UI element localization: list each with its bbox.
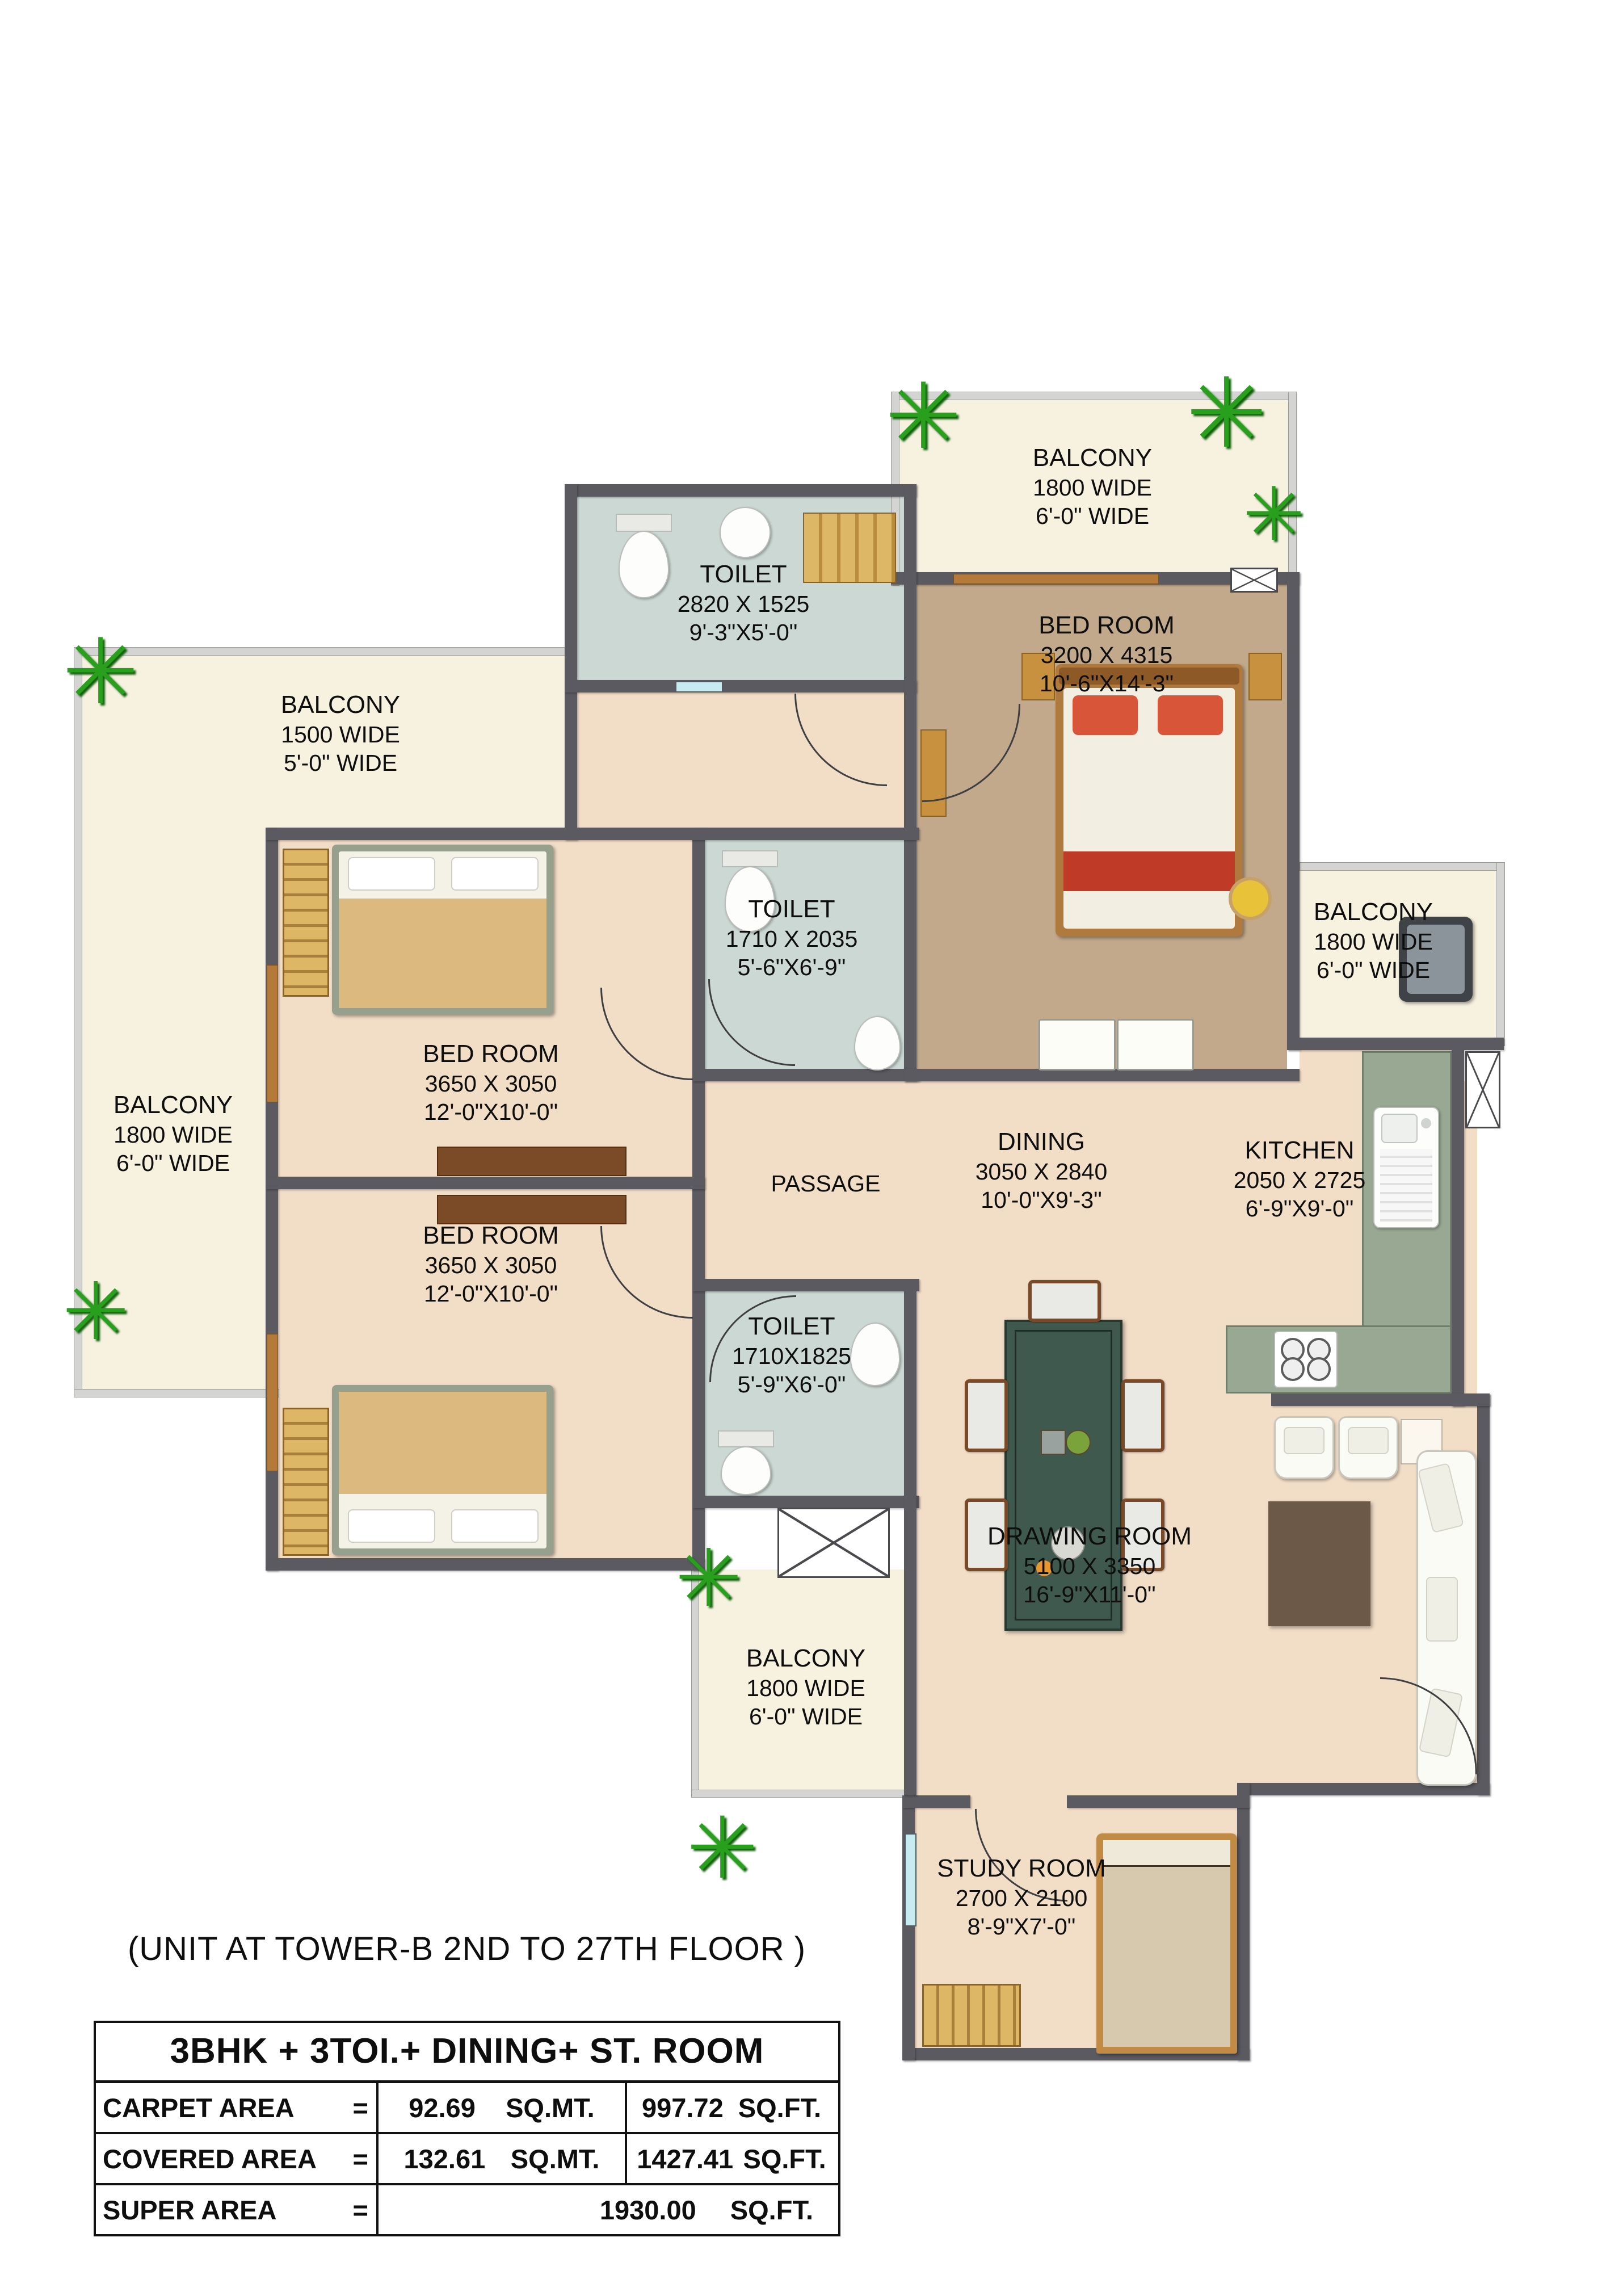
rail-balcony-left-bottom [74,1389,279,1397]
sqft-merged-cell: 1930.00 SQ.FT. [379,2185,836,2234]
bed-pillow [348,857,435,891]
wall-master-left [904,484,916,1081]
area-summary-table: 3BHK + 3TOI.+ DINING+ ST. ROOM CARPET AR… [94,2021,840,2236]
wall-toilet-lower-top [692,1279,919,1291]
room-dim-mm: 2820 X 1525 [678,590,810,618]
plant-icon [1186,358,1267,470]
armchair-cushion [1284,1427,1325,1454]
sliding-door-bedroom-mid-balcony [267,965,278,1102]
armchair-cushion [1348,1427,1389,1454]
wall-study-right [1237,1783,1250,2060]
wall-drawing-right [1477,1393,1490,1795]
bedroom-lower-bed [332,1385,553,1555]
wall-toilet-top-left [565,484,577,840]
floorplan-page: BALCONY 1800 WIDE 6'-0" WIDE TOILET 2820… [0,0,1623,2296]
wall-toilet-lower-bottom [692,1496,919,1508]
room-dim-mm: 3650 X 3050 [423,1069,559,1098]
rail-balcony-topleft-top [74,647,572,656]
wall-study-top-a [902,1795,970,1808]
study-bed-blanket [1103,1840,1230,2047]
room-dim-ft: 12'-0"X10'-0" [423,1279,559,1308]
room-name: BALCONY [1033,443,1152,473]
room-label-toilet-top: TOILET 2820 X 1525 9'-3"X5'-0" [678,559,810,647]
dining-decor [1041,1430,1066,1455]
room-dim-ft: 5'-0" WIDE [281,749,400,777]
room-label-bedroom-lower: BED ROOM 3650 X 3050 12'-0"X10'-0" [423,1220,559,1308]
rail-balcony-right-outer [1496,862,1505,1046]
wall-bedroom-mid-top [266,828,919,840]
room-dim-mm: 5100 X 3350 [987,1552,1192,1580]
sqft-unit: SQ.FT. [743,2143,826,2175]
study-bed-pillow [1103,1840,1230,1867]
room-dim-ft: 5'-6"X6'-9" [726,953,858,981]
sink-drainboard [1380,1149,1432,1222]
plant-icon [62,619,138,725]
room-label-drawing-room: DRAWING ROOM 5100 X 3350 16'-9"X11'-0" [987,1521,1192,1609]
table-row-super-area: SUPER AREA = 1930.00 SQ.FT. [96,2185,838,2234]
kitchen-sink [1373,1107,1439,1228]
master-pouf [1117,1019,1194,1071]
window-study-left [905,1833,916,1926]
room-name: BED ROOM [1038,610,1175,641]
wall-toilet-top-bottom [565,680,916,692]
wc-tank [722,850,778,867]
sliding-door-master-balcony [953,574,1159,584]
room-dim-mm: 3650 X 3050 [423,1251,559,1279]
wall-bedroom-lower-bottom [266,1558,705,1571]
toilet-vanity [803,513,896,583]
wall-master-bottom [904,1069,1300,1081]
room-dim-ft: 6'-9"X9'-0" [1234,1194,1366,1223]
bedside-table [1248,653,1282,700]
window-marker-box [1230,568,1278,593]
row-label: COVERED AREA [103,2143,317,2175]
wc-tank [616,514,672,532]
bed-pillow [451,1509,539,1543]
row-label-cell: CARPET AREA = [96,2083,379,2132]
room-dim-mm: 1500 WIDE [281,720,400,749]
master-bed-pillow [1158,695,1223,735]
room-label-dining: DINING 3050 X 2840 10'-0"X9'-3" [976,1127,1108,1214]
room-name: BED ROOM [423,1039,559,1069]
sqft-value: 1930.00 [600,2194,696,2226]
wc-tank [718,1430,774,1447]
tv-console [437,1147,627,1176]
equals-sign: = [353,2143,368,2175]
room-label-passage: PASSAGE [771,1169,881,1198]
sqmt-value: 92.69 [409,2092,476,2123]
row-label-cell: SUPER AREA = [96,2185,379,2234]
wall-balcony-right-bottom [1287,1038,1504,1050]
room-dim-mm: 1710X1825 [732,1342,851,1370]
wardrobe [283,1408,329,1556]
plan-title: (UNIT AT TOWER-B 2ND TO 27TH FLOOR ) [96,1930,837,1968]
rail-balcony-right-top [1300,862,1505,871]
room-label-balcony-top: BALCONY 1800 WIDE 6'-0" WIDE [1033,443,1152,530]
room-dim-ft: 10'-0"X9'-3" [976,1186,1108,1214]
duct-shaft [1465,1051,1500,1128]
master-bed-pillow [1073,695,1138,735]
sink-bowl [1381,1114,1418,1143]
bed-blanket [339,1392,546,1494]
room-dim-mm: 1800 WIDE [113,1120,233,1149]
washbasin-icon [720,507,771,558]
bed-pillow [348,1509,435,1543]
room-dim-ft: 10'-6"X14'-3" [1038,669,1175,698]
sqft-unit: SQ.FT. [730,2194,813,2226]
bedroom-mid-bed [332,845,553,1015]
master-bed-runner [1063,851,1235,891]
room-name: DINING [976,1127,1108,1157]
plant-icon [62,1266,129,1358]
plant-icon [885,363,961,469]
room-name: STUDY ROOM [937,1853,1105,1884]
sqmt-unit: SQ.MT. [506,2092,595,2123]
room-name: BALCONY [746,1643,865,1674]
room-label-study-room: STUDY ROOM 2700 X 2100 8'-9"X7'-0" [937,1853,1105,1941]
master-pouf [1038,1019,1116,1071]
room-dim-ft: 6'-0" WIDE [1033,502,1152,530]
wall-master-right [1287,572,1300,1050]
room-dim-mm: 3200 X 4315 [1038,641,1175,669]
room-name: TOILET [732,1311,851,1342]
window-toilet-top [675,681,723,692]
drawing-room-rug [1268,1501,1370,1626]
dining-chair [1121,1379,1164,1452]
room-name: BED ROOM [423,1220,559,1251]
burner [1307,1357,1331,1381]
plant-icon [1243,471,1305,557]
room-dim-ft: 6'-0" WIDE [113,1149,233,1177]
sqft-value: 997.72 [642,2092,724,2123]
room-dim-mm: 3050 X 2840 [976,1157,1108,1186]
master-bed [1056,664,1243,937]
stove [1274,1331,1338,1388]
room-dim-mm: 1800 WIDE [1314,927,1433,956]
sqft-value: 1427.41 [637,2143,733,2175]
sqmt-cell: 132.61 SQ.MT. [379,2134,627,2183]
sliding-door-bedroom-lower-balcony [267,1334,278,1471]
sqft-unit: SQ.FT. [738,2092,821,2123]
room-dim-mm: 2700 X 2100 [937,1884,1105,1912]
sqft-cell: 1427.41 SQ.FT. [627,2134,836,2183]
sqmt-value: 132.61 [404,2143,486,2175]
room-dim-mm: 1800 WIDE [1033,473,1152,502]
room-dim-ft: 8'-9"X7'-0" [937,1912,1105,1941]
decor-plate [1229,877,1272,920]
room-dim-ft: 6'-0" WIDE [1314,956,1433,984]
table-row-carpet-area: CARPET AREA = 92.69 SQ.MT. 997.72 SQ.FT. [96,2083,838,2134]
sink-faucet [1421,1118,1431,1128]
armchair [1338,1416,1398,1479]
wall-kitchen-right [1452,1050,1464,1406]
study-wardrobe [922,1984,1021,2047]
room-name: BALCONY [1314,897,1433,927]
equals-sign: = [353,2092,368,2123]
room-label-balcony-left: BALCONY 1800 WIDE 6'-0" WIDE [113,1090,233,1177]
burner [1281,1357,1305,1381]
wall-study-top-b [1067,1795,1250,1808]
wall-balcony-bottom-right [904,1291,916,1795]
sofa-cushion [1426,1577,1458,1642]
room-dim-mm: 1710 X 2035 [726,925,858,953]
room-name: BALCONY [281,690,400,720]
room-label-toilet-mid: TOILET 1710 X 2035 5'-6"X6'-9" [726,894,858,981]
row-label-cell: COVERED AREA = [96,2134,379,2183]
room-label-kitchen: KITCHEN 2050 X 2725 6'-9"X9'-0" [1234,1135,1366,1223]
study-bed [1096,1833,1237,2054]
room-label-balcony-bottom: BALCONY 1800 WIDE 6'-0" WIDE [746,1643,865,1731]
sqmt-unit: SQ.MT. [511,2143,600,2175]
rail-balcony-bottom-bottom [691,1790,915,1798]
dining-chair [1028,1280,1101,1322]
room-dim-ft: 12'-0"X10'-0" [423,1098,559,1126]
sofa-cushion [1418,1463,1464,1533]
dining-plant-pot [1066,1430,1091,1455]
room-dim-ft: 5'-9"X6'-0" [732,1370,851,1399]
room-label-toilet-lower: TOILET 1710X1825 5'-9"X6'-0" [732,1311,851,1399]
row-label: SUPER AREA [103,2194,276,2226]
kitchen-counter-horizontal [1226,1325,1452,1393]
room-dim-ft: 16'-9"X11'-0" [987,1580,1192,1609]
armchair [1274,1416,1334,1479]
wall-toilet-top-top [565,484,916,497]
equals-sign: = [353,2194,368,2226]
room-label-bedroom-mid: BED ROOM 3650 X 3050 12'-0"X10'-0" [423,1039,559,1126]
room-name: BALCONY [113,1090,233,1120]
room-dim-ft: 6'-0" WIDE [746,1702,865,1731]
dining-chair [965,1379,1008,1452]
room-label-bedroom-top: BED ROOM 3200 X 4315 10'-6"X14'-3" [1038,610,1175,698]
row-label: CARPET AREA [103,2092,295,2123]
plant-icon [675,1533,742,1625]
wall-bedrooms-right [692,828,705,1571]
room-dim-ft: 9'-3"X5'-0" [678,618,810,647]
bed-pillow [451,857,539,891]
sqft-cell: 997.72 SQ.FT. [627,2083,836,2132]
room-name: TOILET [726,894,858,925]
wall-kitchen-bottom [1271,1393,1490,1406]
room-name: TOILET [678,559,810,590]
room-label-balcony-top-left: BALCONY 1500 WIDE 5'-0" WIDE [281,690,400,777]
table-header: 3BHK + 3TOI.+ DINING+ ST. ROOM [96,2023,838,2083]
wall-between-bedrooms [266,1177,705,1189]
room-name: PASSAGE [771,1169,881,1198]
room-name: KITCHEN [1234,1135,1366,1166]
table-row-covered-area: COVERED AREA = 132.61 SQ.MT. 1427.41 SQ.… [96,2134,838,2185]
lift-shaft [777,1508,890,1578]
room-name: DRAWING ROOM [987,1521,1192,1552]
wardrobe [283,849,329,997]
room-label-balcony-right: BALCONY 1800 WIDE 6'-0" WIDE [1314,897,1433,984]
sqmt-cell: 92.69 SQ.MT. [379,2083,627,2132]
bed-blanket [339,899,546,1008]
wall-toilet-mid-bottom [692,1069,919,1081]
room-dim-mm: 2050 X 2725 [1234,1166,1366,1194]
plant-icon [687,1799,758,1898]
room-dim-mm: 1800 WIDE [746,1674,865,1702]
